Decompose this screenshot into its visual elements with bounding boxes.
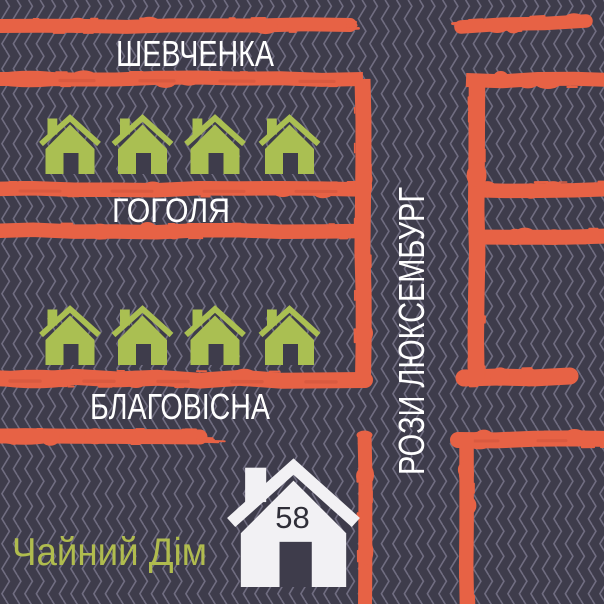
svg-text:ШЕВЧЕНКА: ШЕВЧЕНКА [116,33,274,74]
svg-text:РОЗИ ЛЮКСЕМБУРГ: РОЗИ ЛЮКСЕМБУРГ [391,187,432,475]
svg-text:БЛАГОВІСНА: БЛАГОВІСНА [90,386,270,427]
svg-text:ГОГОЛЯ: ГОГОЛЯ [112,192,230,230]
svg-text:58: 58 [275,500,309,535]
svg-text:Чайний Дім: Чайний Дім [12,531,207,574]
